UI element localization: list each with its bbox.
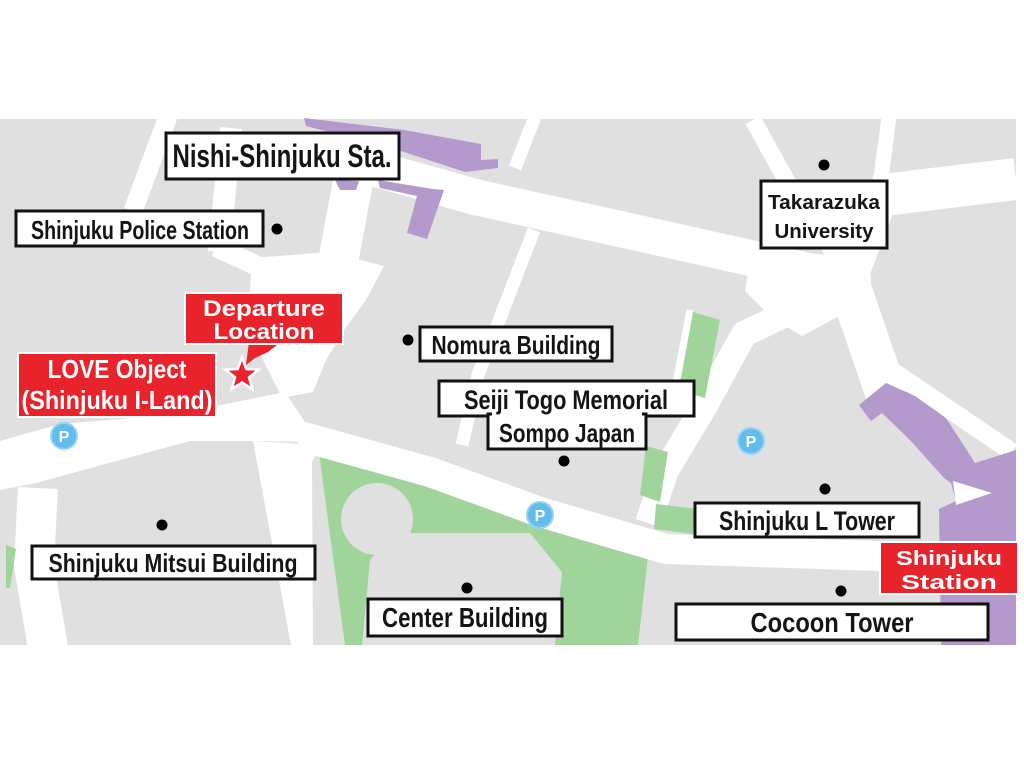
svg-text:P: P: [59, 429, 70, 446]
svg-text:LOVE Object: LOVE Object: [48, 354, 187, 384]
svg-text:Shinjuku: Shinjuku: [896, 548, 1002, 570]
svg-text:Nomura Building: Nomura Building: [432, 330, 601, 360]
svg-text:Shinjuku Mitsui Building: Shinjuku Mitsui Building: [49, 548, 298, 578]
svg-text:P: P: [746, 434, 757, 451]
svg-text:Cocoon Tower: Cocoon Tower: [751, 607, 914, 638]
svg-text:Nishi-Shinjuku Sta.: Nishi-Shinjuku Sta.: [173, 138, 392, 174]
svg-text:Location: Location: [214, 319, 315, 344]
svg-text:Shinjuku Police Station: Shinjuku Police Station: [31, 215, 249, 245]
svg-text:Seiji Togo Memorial: Seiji Togo Memorial: [464, 385, 668, 415]
svg-text:(Shinjuku I-Land): (Shinjuku I-Land): [22, 385, 213, 415]
svg-text:Departure: Departure: [203, 296, 325, 321]
svg-text:Shinjuku L Tower: Shinjuku L Tower: [719, 506, 895, 536]
svg-text:University: University: [775, 221, 875, 243]
svg-text:Station: Station: [901, 572, 997, 594]
svg-text:P: P: [535, 508, 546, 525]
svg-text:Sompo Japan: Sompo Japan: [499, 418, 635, 448]
svg-text:Center Building: Center Building: [382, 602, 548, 633]
svg-text:Takarazuka: Takarazuka: [768, 192, 881, 214]
